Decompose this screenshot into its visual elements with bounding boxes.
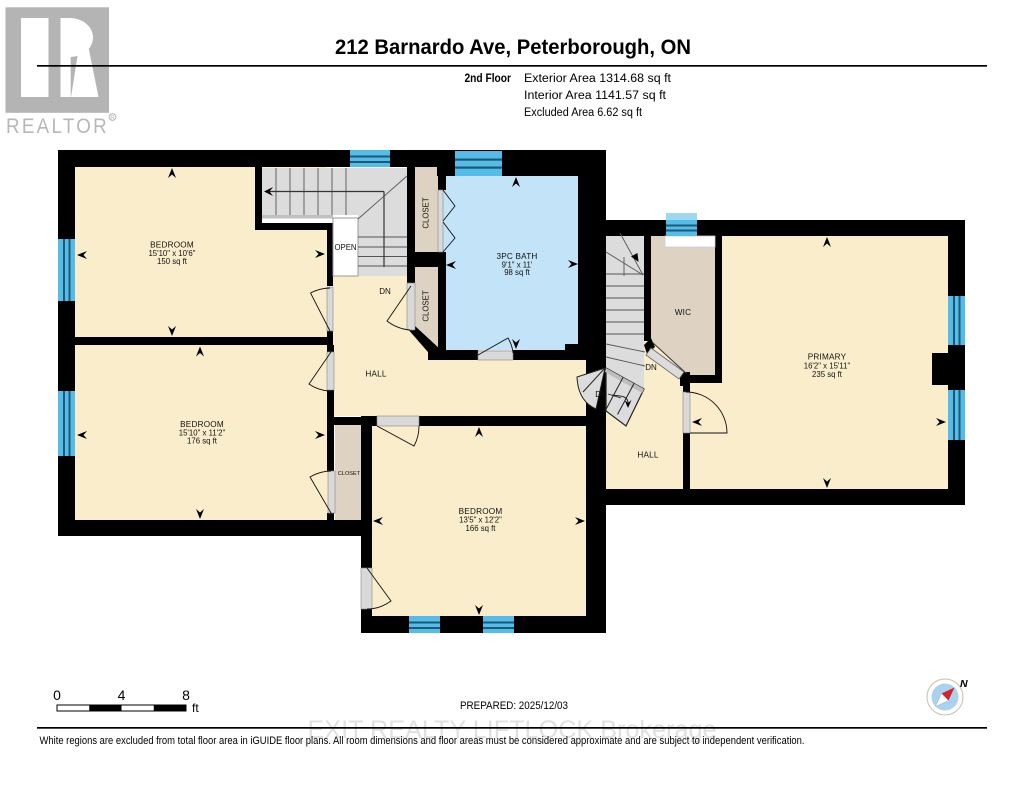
svg-text:CLOSET: CLOSET <box>422 197 431 228</box>
svg-text:2nd Floor: 2nd Floor <box>465 73 512 85</box>
svg-text:REALTOR: REALTOR <box>6 115 109 138</box>
svg-text:White regions are excluded fro: White regions are excluded from total fl… <box>40 735 805 747</box>
svg-text:Excluded Area 6.62 sq ft: Excluded Area 6.62 sq ft <box>524 107 643 119</box>
svg-text:176 sq ft: 176 sq ft <box>187 437 218 446</box>
svg-text:166 sq ft: 166 sq ft <box>466 524 497 533</box>
svg-text:150 sq ft: 150 sq ft <box>157 257 188 266</box>
svg-text:N: N <box>960 678 968 690</box>
svg-text:PREPARED: 2025/12/03: PREPARED: 2025/12/03 <box>460 700 568 712</box>
svg-text:DN: DN <box>379 287 391 296</box>
svg-text:DN: DN <box>595 390 607 399</box>
svg-text:0: 0 <box>53 687 61 703</box>
svg-text:PRIMARY: PRIMARY <box>808 353 847 362</box>
svg-text:Exterior Area 1314.68 sq ft: Exterior Area 1314.68 sq ft <box>524 73 672 85</box>
svg-text:R: R <box>110 116 115 122</box>
svg-text:HALL: HALL <box>365 370 387 379</box>
svg-text:Interior Area 1141.57 sq ft: Interior Area 1141.57 sq ft <box>524 90 667 102</box>
svg-text:WIC: WIC <box>675 308 692 317</box>
svg-text:OPEN: OPEN <box>334 243 356 252</box>
svg-text:CLOSET: CLOSET <box>422 290 431 321</box>
svg-text:CLOSET: CLOSET <box>338 471 361 477</box>
svg-text:235 sq ft: 235 sq ft <box>812 370 843 379</box>
svg-text:HALL: HALL <box>637 450 659 459</box>
svg-text:8: 8 <box>182 687 190 703</box>
svg-text:ft: ft <box>192 701 199 715</box>
svg-text:98 sq ft: 98 sq ft <box>504 268 530 277</box>
svg-text:212 Barnardo Ave, Peterborough: 212 Barnardo Ave, Peterborough, ON <box>335 35 691 59</box>
svg-text:DN: DN <box>645 363 657 372</box>
svg-text:4: 4 <box>118 687 126 703</box>
